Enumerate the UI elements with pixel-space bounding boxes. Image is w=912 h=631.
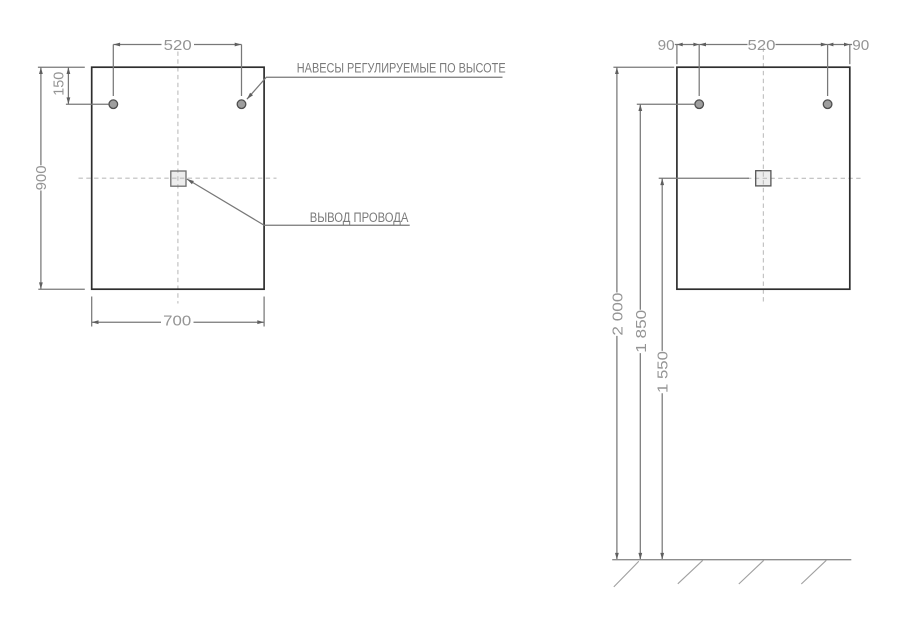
svg-text:700: 700 bbox=[163, 313, 191, 330]
svg-text:НАВЕСЫ РЕГУЛИРУЕМЫЕ ПО ВЫСОТЕ: НАВЕСЫ РЕГУЛИРУЕМЫЕ ПО ВЫСОТЕ bbox=[297, 61, 506, 77]
svg-text:1 550: 1 550 bbox=[655, 351, 672, 393]
svg-text:2 000: 2 000 bbox=[609, 293, 626, 336]
svg-text:90: 90 bbox=[852, 37, 869, 54]
svg-text:150: 150 bbox=[51, 72, 68, 96]
svg-text:520: 520 bbox=[164, 37, 192, 54]
svg-text:ВЫВОД ПРОВОДА: ВЫВОД ПРОВОДА bbox=[310, 210, 409, 226]
svg-text:90: 90 bbox=[658, 37, 675, 54]
svg-text:900: 900 bbox=[33, 165, 50, 190]
svg-text:1 850: 1 850 bbox=[633, 310, 650, 353]
svg-text:520: 520 bbox=[748, 37, 776, 54]
